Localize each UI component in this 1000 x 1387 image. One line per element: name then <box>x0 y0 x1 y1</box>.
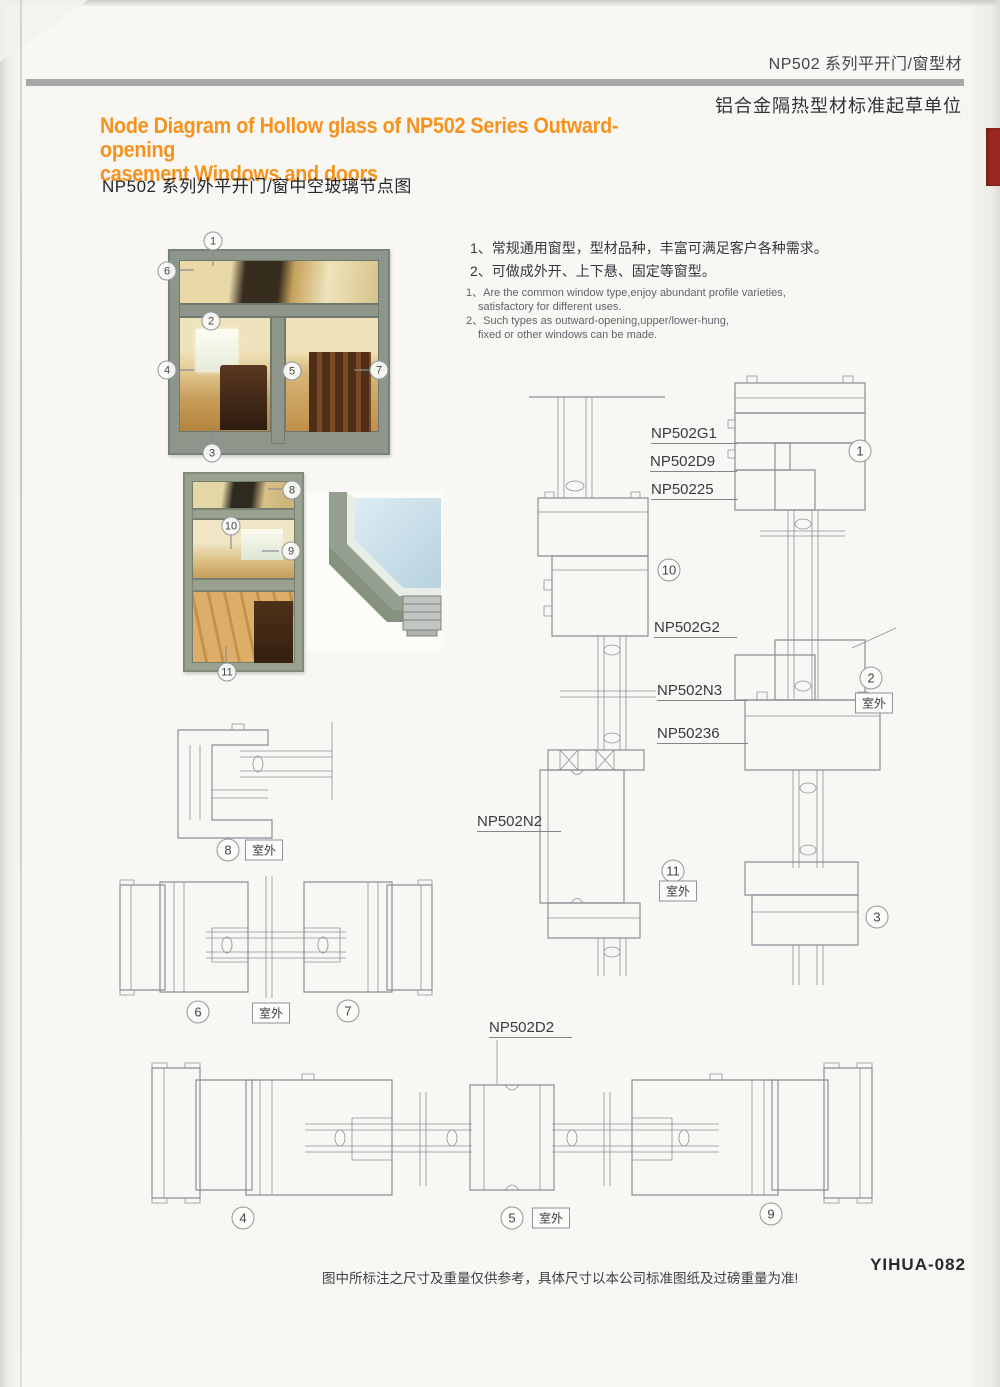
section-drawing-bottom <box>152 1040 872 1203</box>
photo-callout-6: 6 <box>158 262 177 281</box>
photo-callout-8: 8 <box>283 481 302 500</box>
photo-callout-1: 1 <box>204 232 223 251</box>
profile-label-np502d2: NP502D2 <box>489 1019 572 1038</box>
page-title-chinese: NP502 系列外平开门/窗中空玻璃节点图 <box>102 172 412 197</box>
photo2-top-pane <box>192 481 295 509</box>
profile-corner-render-art <box>307 492 443 650</box>
photo-transom-pane <box>179 260 379 304</box>
section-callout-2: 2 <box>860 667 883 690</box>
section-drawing-8 <box>178 722 332 838</box>
section-callout-4: 4 <box>232 1207 255 1230</box>
outdoor-box-5: 室外 <box>532 1208 570 1229</box>
note-en-2: satisfactory for different uses. <box>466 300 621 314</box>
outdoor-box-2: 室外 <box>855 693 893 714</box>
photo-callout-10: 10 <box>222 517 241 536</box>
note-en-4: fixed or other windows can be made. <box>466 328 657 342</box>
photo2-back-window <box>241 529 282 560</box>
header-org-subtitle: 铝合金隔热型材标准起草单位 <box>715 92 962 118</box>
footer-disclaimer: 图中所标注之尺寸及重量仅供参考，具体尺寸以本公司标准图纸及过磅重量为准! <box>322 1267 798 1287</box>
photo-callout-7: 7 <box>370 361 389 380</box>
photo2-chair-silhouette <box>254 601 293 663</box>
section-callout-9: 9 <box>760 1203 783 1226</box>
photo-callout-5: 5 <box>283 362 302 381</box>
photo-chair-silhouette <box>220 365 268 429</box>
photo-chair-back-slats <box>309 352 371 433</box>
section-callout-5: 5 <box>501 1207 524 1230</box>
profile-label-np502d9: NP502D9 <box>650 453 737 472</box>
header-divider-bar <box>26 79 964 86</box>
photo2-rail-1 <box>192 509 295 519</box>
photo-callout-2: 2 <box>202 312 221 331</box>
section-callout-3: 3 <box>866 906 889 929</box>
photo-callout-11: 11 <box>218 663 237 682</box>
section-callout-8: 8 <box>217 839 240 862</box>
profile-label-np502n2: NP502N2 <box>477 813 561 832</box>
section-callout-7: 7 <box>337 1000 360 1023</box>
profile-corner-render <box>307 492 443 650</box>
section-callout-6: 6 <box>187 1001 210 1024</box>
profile-label-np50225: NP50225 <box>651 481 738 500</box>
note-en-3: 2、Such types as outward-opening,upper/lo… <box>466 314 729 328</box>
profile-label-np502n3: NP502N3 <box>657 682 748 701</box>
photo-center-mullion <box>271 317 285 444</box>
scan-corner-fold <box>0 0 88 62</box>
section-callout-11: 11 <box>662 860 685 883</box>
profile-label-np502g1: NP502G1 <box>651 425 738 444</box>
page-title-english-line1: Node Diagram of Hollow glass of NP502 Se… <box>100 114 676 162</box>
outdoor-box-6-7: 室外 <box>252 1003 290 1024</box>
section-callout-1: 1 <box>849 440 872 463</box>
window-photo-two-panel <box>168 249 390 455</box>
photo2-rail-2 <box>192 579 295 591</box>
note-zh-2: 2、可做成外开、上下悬、固定等窗型。 <box>470 261 716 281</box>
catalog-page: NP502 系列平开门/窗型材 铝合金隔热型材标准起草单位 Node Diagr… <box>0 0 1000 1387</box>
window-photo-tall <box>183 472 304 672</box>
profile-label-np502g2: NP502G2 <box>654 619 737 638</box>
note-en-1: 1、Are the common window type,enjoy abund… <box>466 286 786 300</box>
photo-left-sash-pane <box>179 317 271 432</box>
cad-drawings <box>0 0 1000 1387</box>
footer-page-code: YIHUA-082 <box>870 1255 966 1275</box>
scan-top-edge <box>0 0 1000 7</box>
header-series-title: NP502 系列平开门/窗型材 <box>769 50 962 74</box>
scan-right-edge <box>991 0 1000 1387</box>
scan-left-crease <box>20 0 22 1387</box>
profile-label-np50236: NP50236 <box>657 725 748 744</box>
photo-callout-4: 4 <box>158 361 177 380</box>
section-drawing-mid-column <box>529 397 665 976</box>
page-edge-tab <box>986 128 1000 186</box>
note-zh-1: 1、常规通用窗型，型材品种，丰富可满足客户各种需求。 <box>470 238 828 258</box>
photo2-middle-pane <box>192 519 295 579</box>
photo2-bottom-pane <box>192 591 295 663</box>
photo-callout-3: 3 <box>203 444 222 463</box>
section-drawing-6-7 <box>120 876 432 998</box>
outdoor-box-8: 室外 <box>245 840 283 861</box>
photo-callout-9: 9 <box>282 542 301 561</box>
section-callout-10: 10 <box>658 559 681 582</box>
outdoor-box-11: 室外 <box>659 881 697 902</box>
